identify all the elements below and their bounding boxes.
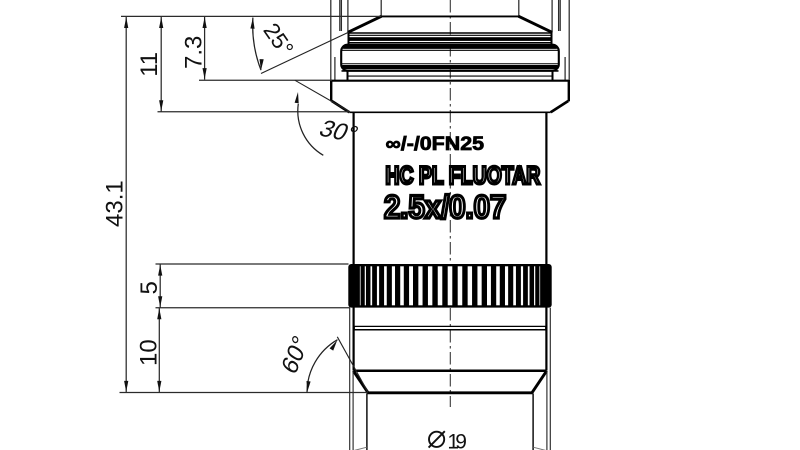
svg-text:11: 11	[136, 52, 163, 77]
svg-text:2.5x/0.07: 2.5x/0.07	[384, 189, 506, 225]
svg-text:60°: 60°	[277, 331, 314, 379]
svg-text:7.3: 7.3	[180, 36, 207, 69]
svg-text:43.1: 43.1	[101, 180, 128, 227]
svg-text:∞/-/0FN25: ∞/-/0FN25	[386, 134, 485, 155]
svg-text:5: 5	[136, 281, 163, 294]
svg-text:25°: 25°	[258, 19, 298, 61]
svg-text:19: 19	[447, 431, 466, 450]
svg-text:30°: 30°	[315, 116, 363, 148]
svg-text:10: 10	[136, 339, 163, 366]
svg-text:HC PL FLUOTAR: HC PL FLUOTAR	[385, 162, 540, 190]
